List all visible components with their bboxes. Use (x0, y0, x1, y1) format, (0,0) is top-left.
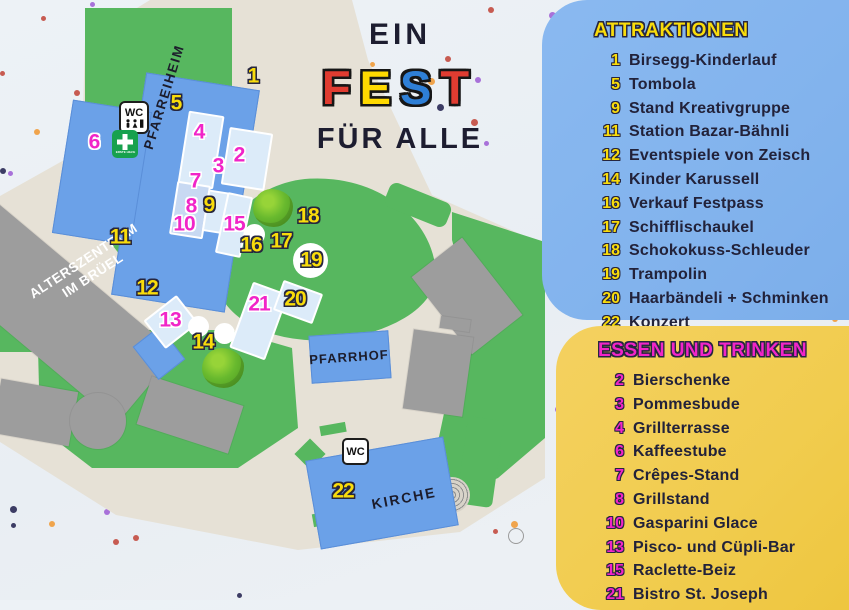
map-marker-12: 12 (136, 278, 157, 299)
legend-item: 8Grillstand (598, 491, 843, 509)
legend-item: 1Birsegg-Kinderlauf (594, 52, 839, 70)
map-marker-9: 9 (204, 195, 215, 216)
legend-item-number: 13 (598, 539, 624, 557)
legend-item-label: Kinder Karussell (629, 171, 759, 189)
legend-item: 14Kinder Karussell (594, 171, 839, 189)
legend-item: 16Verkauf Festpass (594, 195, 839, 213)
festival-map-poster: WC ERSTE HILFE WC PFARREIHEIM ALTERSZENT… (0, 0, 849, 600)
legend-item-label: Birsegg-Kinderlauf (629, 52, 777, 70)
legend-item-number: 14 (594, 171, 620, 189)
legend-item: 18Schokokuss-Schleuder (594, 242, 839, 260)
wc-sign-kirche: WC (342, 438, 369, 465)
legend-item-label: Grillstand (633, 491, 710, 509)
legend-item: 12Eventspiele von Zeisch (594, 147, 839, 165)
legend-item-label: Schokokuss-Schleuder (629, 242, 810, 260)
legend-item-label: Schifflischaukel (629, 219, 754, 237)
map-marker-4: 4 (194, 122, 205, 143)
legend-item: 10Gasparini Glace (598, 515, 843, 533)
map-marker-15: 15 (223, 214, 244, 235)
tent-bierschenke (221, 127, 274, 191)
legend-item-label: Trampolin (629, 266, 707, 284)
tree (202, 348, 244, 388)
legend-item-label: Pommesbude (633, 396, 740, 414)
legend-item: 19Trampolin (594, 266, 839, 284)
legend-item: 13Pisco- und Cüpli-Bar (598, 539, 843, 557)
legend-item-number: 8 (598, 491, 624, 509)
legend-item: 2Bierschenke (598, 372, 843, 390)
attractions-heading: ATTRAKTIONEN (594, 20, 839, 42)
legend-item-number: 12 (594, 147, 620, 165)
legend-item-number: 9 (594, 100, 620, 118)
legend-item-number: 1 (594, 52, 620, 70)
map-marker-5: 5 (171, 93, 182, 114)
fest-letter: E (360, 61, 400, 114)
title-line-ein: EIN (295, 18, 505, 52)
legend-item-number: 18 (594, 242, 620, 260)
map-marker-3: 3 (213, 156, 224, 177)
map-marker-22: 22 (332, 481, 353, 502)
legend-item: 7Crêpes-Stand (598, 467, 843, 485)
legend-item-number: 20 (594, 290, 620, 308)
first-aid-cross-icon (117, 134, 133, 150)
legend-item-label: Eventspiele von Zeisch (629, 147, 810, 165)
legend-item: 3Pommesbude (598, 396, 843, 414)
legend-item-label: Haarbändeli + Schminken (629, 290, 829, 308)
fest-letter: F (322, 61, 360, 114)
legend-item-number: 21 (598, 586, 624, 604)
legend-item: 5Tombola (594, 76, 839, 94)
fountain-circle (508, 528, 524, 544)
map-marker-1: 1 (248, 66, 259, 87)
legend-item-label: Raclette-Beiz (633, 562, 736, 580)
wc-label: WC (125, 108, 143, 118)
legend-item-label: Gasparini Glace (633, 515, 758, 533)
legend-item: 11Station Bazar-Bähnli (594, 123, 839, 141)
legend-item-number: 17 (594, 219, 620, 237)
map-marker-14: 14 (192, 332, 213, 353)
map-marker-20: 20 (284, 289, 305, 310)
legend-item-label: Verkauf Festpass (629, 195, 764, 213)
carousel-circle (214, 323, 235, 344)
legend-item: 4Grillterrasse (598, 420, 843, 438)
map-marker-7: 7 (190, 171, 201, 192)
map-marker-13: 13 (159, 310, 180, 331)
legend-item-label: Stand Kreativgruppe (629, 100, 790, 118)
fest-letter: S (400, 61, 440, 114)
legend-item: 9Stand Kreativgruppe (594, 100, 839, 118)
legend-item: 6Kaffeestube (598, 443, 843, 461)
legend-item-label: Pisco- und Cüpli-Bar (633, 539, 795, 557)
legend-item-number: 10 (598, 515, 624, 533)
legend-item: 15Raclette-Beiz (598, 562, 843, 580)
legend-item-label: Bierschenke (633, 372, 730, 390)
map-marker-6: 6 (89, 132, 100, 153)
legend-item: 21Bistro St. Joseph (598, 586, 843, 604)
food-list: 2Bierschenke3Pommesbude4Grillterrasse6Ka… (598, 372, 843, 604)
legend-item: 17Schifflischaukel (594, 219, 839, 237)
food-heading: ESSEN UND TRINKEN (598, 340, 843, 362)
legend-item-number: 15 (598, 562, 624, 580)
title-line-fuer-alle: FÜR ALLE (295, 123, 505, 156)
attractions-list: 1Birsegg-Kinderlauf5Tombola9Stand Kreati… (594, 52, 839, 332)
legend-item-number: 11 (594, 123, 620, 141)
first-aid-label: ERSTE HILFE (115, 152, 135, 154)
title-line-fest: FEST (295, 60, 505, 115)
legend-item-label: Station Bazar-Bähnli (629, 123, 789, 141)
legend-panel-attractions: ATTRAKTIONEN 1Birsegg-Kinderlauf5Tombola… (542, 0, 849, 320)
legend-item-number: 19 (594, 266, 620, 284)
map-marker-2: 2 (234, 145, 245, 166)
map-marker-18: 18 (297, 206, 318, 227)
legend-panel-food: ESSEN UND TRINKEN 2Bierschenke3Pommesbud… (556, 326, 849, 610)
map-marker-10: 10 (173, 214, 194, 235)
map-marker-11: 11 (110, 227, 130, 248)
legend-item: 20Haarbändeli + Schminken (594, 290, 839, 308)
restroom-figures-icon (124, 119, 144, 128)
legend-item-label: Crêpes-Stand (633, 467, 739, 485)
legend-item-number: 6 (598, 443, 624, 461)
legend-item-label: Kaffeestube (633, 443, 727, 461)
tree (253, 189, 293, 227)
map-marker-16: 16 (240, 235, 261, 256)
legend-item-label: Bistro St. Joseph (633, 586, 768, 604)
legend-item-number: 16 (594, 195, 620, 213)
wc-label: WC (346, 447, 364, 457)
map-marker-17: 17 (270, 231, 291, 252)
legend-item-number: 5 (594, 76, 620, 94)
building-gray-center (403, 329, 474, 417)
legend-item-label: Tombola (629, 76, 696, 94)
map-marker-19: 19 (300, 250, 321, 271)
map-marker-21: 21 (248, 294, 269, 315)
legend-item-number: 7 (598, 467, 624, 485)
poster-title: EIN FEST FÜR ALLE (295, 18, 505, 156)
building-gray-round (70, 393, 126, 449)
legend-item-number: 3 (598, 396, 624, 414)
fest-letter: T (440, 61, 478, 114)
legend-item-number: 2 (598, 372, 624, 390)
legend-item-label: Grillterrasse (633, 420, 730, 438)
first-aid-sign: ERSTE HILFE (112, 130, 138, 158)
legend-item-number: 4 (598, 420, 624, 438)
